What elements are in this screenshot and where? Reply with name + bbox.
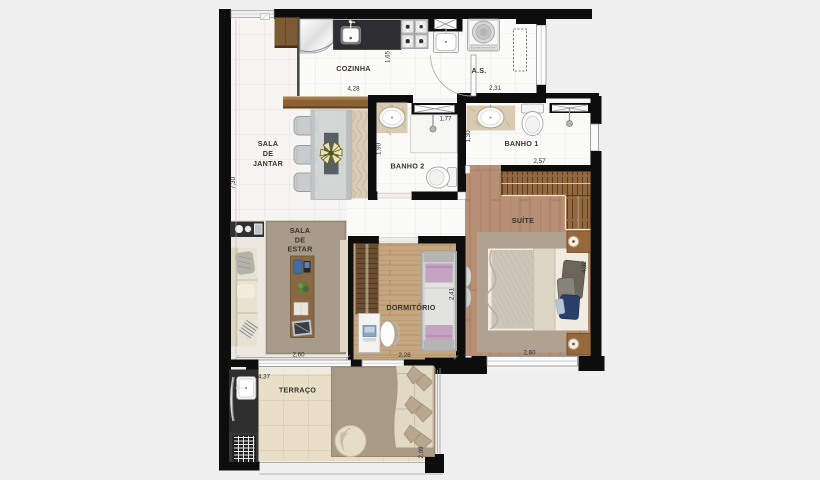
svg-text:2,57: 2,57 <box>533 158 546 165</box>
svg-text:2,41: 2,41 <box>449 287 456 300</box>
svg-text:BANHO 1: BANHO 1 <box>504 139 538 148</box>
svg-text:1,90: 1,90 <box>376 142 383 155</box>
svg-text:DE: DE <box>263 149 274 158</box>
svg-text:2,60: 2,60 <box>292 352 305 359</box>
svg-text:JANTAR: JANTAR <box>253 159 284 168</box>
svg-text:2,60: 2,60 <box>523 350 536 357</box>
svg-text:2,09: 2,09 <box>418 446 425 459</box>
svg-text:4,02: 4,02 <box>581 260 588 273</box>
svg-text:2,31: 2,31 <box>489 85 502 92</box>
svg-text:2,28: 2,28 <box>398 352 411 359</box>
svg-text:7,30: 7,30 <box>230 176 237 189</box>
svg-text:1,30: 1,30 <box>465 130 472 143</box>
svg-text:COZINHA: COZINHA <box>336 64 371 73</box>
svg-text:SALA: SALA <box>258 139 279 148</box>
svg-text:ESTAR: ESTAR <box>287 245 313 254</box>
svg-text:A.S.: A.S. <box>472 66 487 75</box>
svg-text:DE: DE <box>295 236 306 245</box>
svg-text:DORMITÓRIO: DORMITÓRIO <box>386 303 435 312</box>
svg-text:TERRAÇO: TERRAÇO <box>279 386 316 395</box>
svg-text:4,37: 4,37 <box>258 374 271 381</box>
svg-text:4,28: 4,28 <box>347 86 360 93</box>
svg-text:1,77: 1,77 <box>439 116 452 123</box>
svg-text:BANHO 2: BANHO 2 <box>390 162 424 171</box>
svg-text:SUÍTE: SUÍTE <box>512 216 534 225</box>
svg-text:SALA: SALA <box>290 226 311 235</box>
svg-text:1,65: 1,65 <box>385 50 392 63</box>
